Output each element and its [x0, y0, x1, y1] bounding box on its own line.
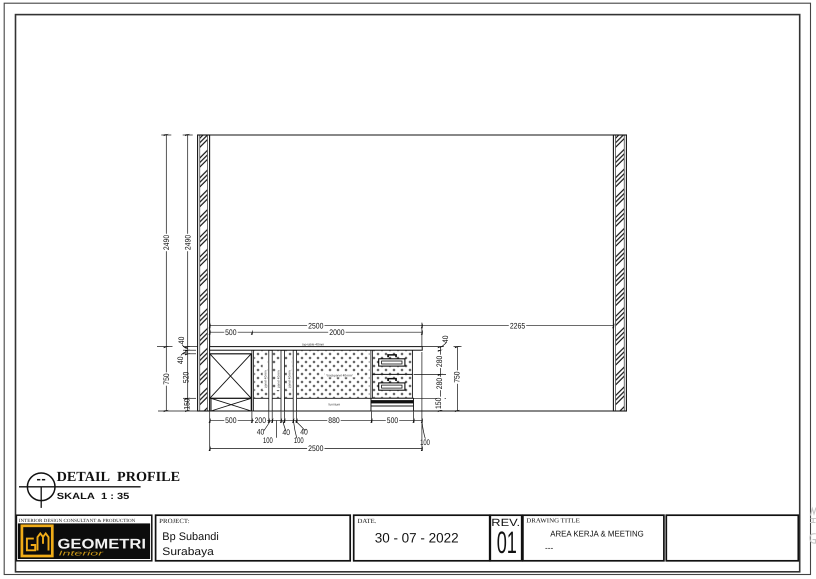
- svg-text:01: 01: [497, 525, 517, 560]
- svg-text:Bp Subandi: Bp Subandi: [162, 531, 219, 543]
- svg-text:AREA KERJA & MEETING: AREA KERJA & MEETING: [550, 528, 644, 538]
- svg-text:INTERIOR DESIGN CONSULTANT & P: INTERIOR DESIGN CONSULTANT & PRODUCTION: [19, 518, 136, 524]
- svg-text:100: 100: [420, 438, 430, 447]
- svg-text:500: 500: [225, 416, 237, 425]
- svg-text:500: 500: [387, 416, 399, 425]
- svg-text:150: 150: [434, 397, 443, 409]
- svg-text:280: 280: [435, 355, 444, 367]
- svg-text:40: 40: [176, 356, 185, 364]
- svg-text:500: 500: [225, 328, 237, 337]
- svg-text:GEOMETRI: GEOMETRI: [58, 535, 147, 551]
- svg-text:520: 520: [182, 371, 191, 383]
- svg-text:750: 750: [453, 371, 462, 383]
- svg-text:2000: 2000: [329, 328, 345, 337]
- svg-text:Surabaya: Surabaya: [162, 546, 214, 558]
- svg-text:---: ---: [545, 543, 554, 553]
- svg-text:panel 40mm: panel 40mm: [288, 370, 292, 388]
- svg-text:Interior: Interior: [59, 549, 105, 557]
- svg-text:SKALA 1 : 35: SKALA 1 : 35: [57, 491, 130, 501]
- svg-text:2265: 2265: [510, 321, 526, 330]
- svg-text:DRAWING TITLE: DRAWING TITLE: [526, 517, 580, 524]
- svg-text:panel 40mm: panel 40mm: [263, 370, 267, 388]
- svg-text:furniture: furniture: [329, 403, 341, 407]
- svg-text:40: 40: [282, 428, 290, 437]
- svg-text:750: 750: [162, 373, 171, 385]
- svg-text:panel 40mm: panel 40mm: [276, 370, 280, 388]
- svg-text:top-table 40mm: top-table 40mm: [302, 343, 324, 347]
- svg-text:DATE.: DATE.: [358, 518, 377, 525]
- svg-text:DETAIL PROFILE: DETAIL PROFILE: [57, 470, 181, 485]
- svg-text:*backpanel 40mm*: *backpanel 40mm*: [326, 374, 354, 378]
- svg-text:30 - 07 - 2022: 30 - 07 - 2022: [375, 531, 459, 546]
- svg-text:880: 880: [328, 416, 340, 425]
- svg-text:150: 150: [182, 398, 191, 410]
- svg-text:100: 100: [263, 436, 273, 445]
- svg-text:2490: 2490: [184, 234, 193, 250]
- svg-text:100: 100: [294, 436, 304, 445]
- svg-text:280: 280: [435, 377, 444, 389]
- svg-text:PROJECT:: PROJECT:: [159, 518, 190, 525]
- svg-text:2500: 2500: [308, 321, 324, 330]
- svg-text:40: 40: [300, 428, 308, 437]
- svg-text:40: 40: [441, 335, 450, 343]
- svg-text:2490: 2490: [162, 234, 171, 250]
- svg-text:200: 200: [255, 416, 267, 425]
- svg-text:40: 40: [177, 336, 186, 344]
- svg-text:2500: 2500: [308, 444, 324, 453]
